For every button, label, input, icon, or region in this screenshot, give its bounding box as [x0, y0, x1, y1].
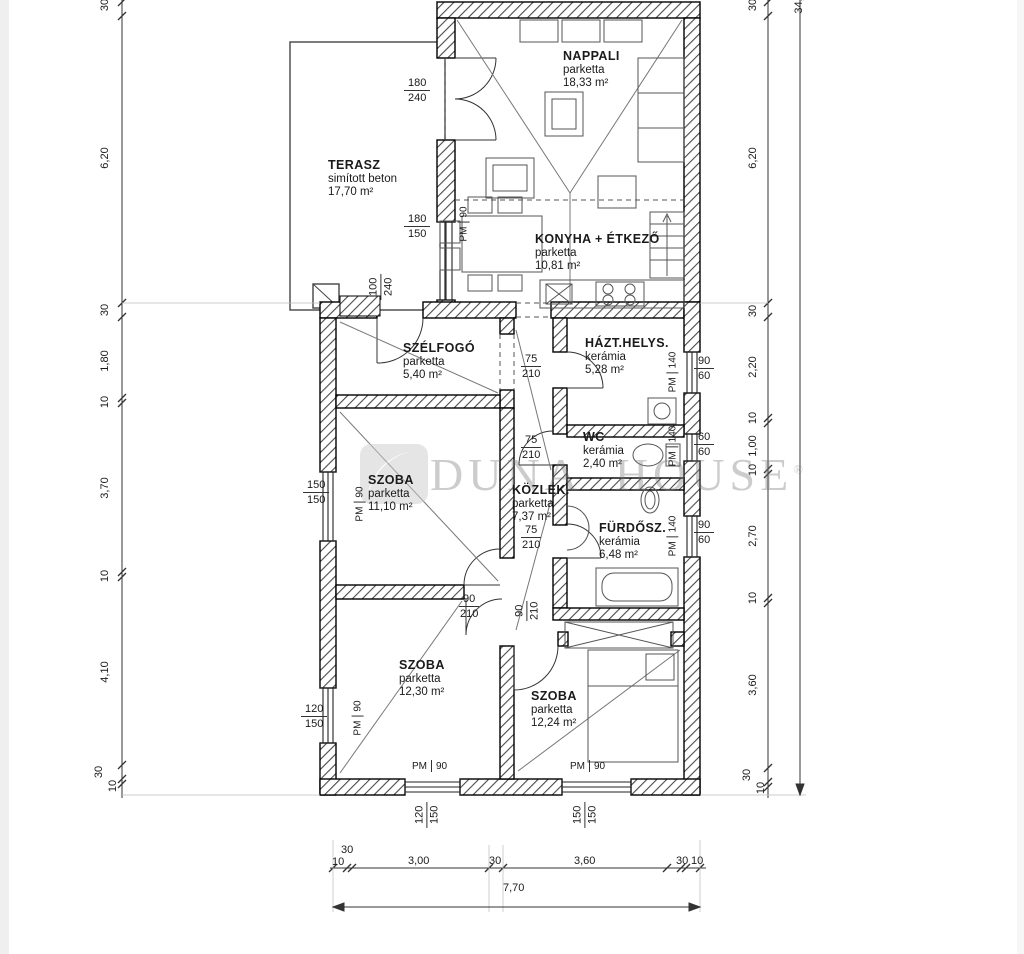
dim-window-del1: 120 150 — [412, 802, 442, 828]
dim-window-szoba2-sill: PM90 — [352, 700, 364, 735]
dim-right-10: 30 — [741, 758, 753, 792]
dim-door-szoba1: 90 210 — [456, 592, 482, 622]
dim-left-8: 30 — [93, 755, 105, 789]
dim-window-szoba2: 120 150 — [301, 702, 327, 732]
room-label-szoba3: SZOBA parketta 12,24 m² — [531, 689, 577, 731]
dim-left-1: 6,20 — [99, 141, 111, 175]
dim-window-szoba1: 150 150 — [303, 478, 329, 508]
dim-bottom-0: 30 — [341, 844, 353, 856]
room-label-wc: WC kerámia 2,40 m² — [583, 430, 624, 472]
room-label-szoba1: SZOBA parketta 11,10 m² — [368, 473, 414, 515]
dim-left-0: 30 — [99, 0, 111, 22]
dim-window-hazt: 90 60 — [694, 354, 714, 384]
dim-bottom-6: 10 — [691, 855, 703, 867]
dim-right-0: 30 — [747, 0, 759, 22]
dim-bottom-3: 30 — [489, 855, 501, 867]
dim-right-9: 3,60 — [747, 668, 759, 702]
room-label-terasz: TERASZ simított beton 17,70 m² — [328, 158, 397, 200]
dim-window-hazt-sill: PM140 — [666, 352, 678, 393]
dim-left-4: 10 — [99, 385, 111, 419]
dim-left-7: 4,10 — [99, 655, 111, 689]
dim-left-3: 1,80 — [99, 344, 111, 378]
dim-window-del2: 150 150 — [570, 802, 600, 828]
dim-right-6: 10 — [747, 453, 759, 487]
dim-bottom-4: 3,60 — [574, 855, 595, 867]
dim-right-7: 2,70 — [747, 519, 759, 553]
dim-right-2: 30 — [747, 294, 759, 328]
dim-left-2: 30 — [99, 293, 111, 327]
dim-window-del2-sill: PM90 — [570, 760, 605, 772]
dim-konyha-window: 180 150 — [404, 212, 430, 242]
room-label-kozlek: KÖZLEK. parketta 7,37 m² — [512, 483, 570, 525]
walls — [320, 2, 700, 795]
dim-left-9: 10 — [107, 769, 119, 803]
dim-window-furdo: 90 60 — [694, 518, 714, 548]
dim-bottom-1: 10 — [332, 856, 344, 868]
dim-bottom-2: 3,00 — [408, 855, 429, 867]
dim-window-del1-sill: PM90 — [412, 760, 447, 772]
dim-window-szoba1-sill: PM90 — [354, 486, 366, 521]
room-label-nappali: NAPPALI parketta 18,33 m² — [563, 49, 620, 91]
dim-right-1: 6,20 — [747, 141, 759, 175]
dim-window-furdo-sill: PM140 — [666, 516, 678, 557]
floorplan-page: { "watermark": { "brand": "DUNA HOUSE", … — [0, 0, 1024, 954]
dim-right-11: 10 — [755, 771, 767, 805]
dim-door-furdo: 75 210 — [518, 523, 544, 553]
room-label-konyha: KONYHA + ÉTKEZŐ parketta 10,81 m² — [535, 232, 660, 274]
dim-window-wc-sill: PM140 — [666, 426, 678, 467]
dim-left-5: 3,70 — [99, 471, 111, 505]
dim-door-wc: 75 210 — [518, 433, 544, 463]
dim-bottom-total: 7,70 — [503, 882, 524, 894]
dim-window-wc: 60 60 — [694, 430, 714, 460]
dim-entrance-door: 100 240 — [366, 274, 396, 300]
dim-right-3: 2,20 — [747, 350, 759, 384]
dim-bottom-5: 30 — [676, 855, 688, 867]
room-label-szoba2: SZOBA parketta 12,30 m² — [399, 658, 445, 700]
dim-konyha-window-sill: PM90 — [458, 206, 470, 241]
dim-left-6: 10 — [99, 559, 111, 593]
room-label-furdo: FÜRDŐSZ. kerámia 6,48 m² — [599, 521, 666, 563]
room-label-hazt: HÁZT.HELYS. kerámia 5,28 m² — [585, 336, 669, 378]
dim-door-hazt: 75 210 — [518, 352, 544, 382]
room-label-szelfogo: SZÉLFOGÓ parketta 5,40 m² — [403, 341, 475, 383]
dim-terasz-door: 180 240 — [404, 76, 430, 106]
dim-right-8: 10 — [747, 581, 759, 615]
dim-right-total: 34, — [793, 0, 805, 23]
dim-door-szoba3: 90 210 — [512, 598, 542, 624]
